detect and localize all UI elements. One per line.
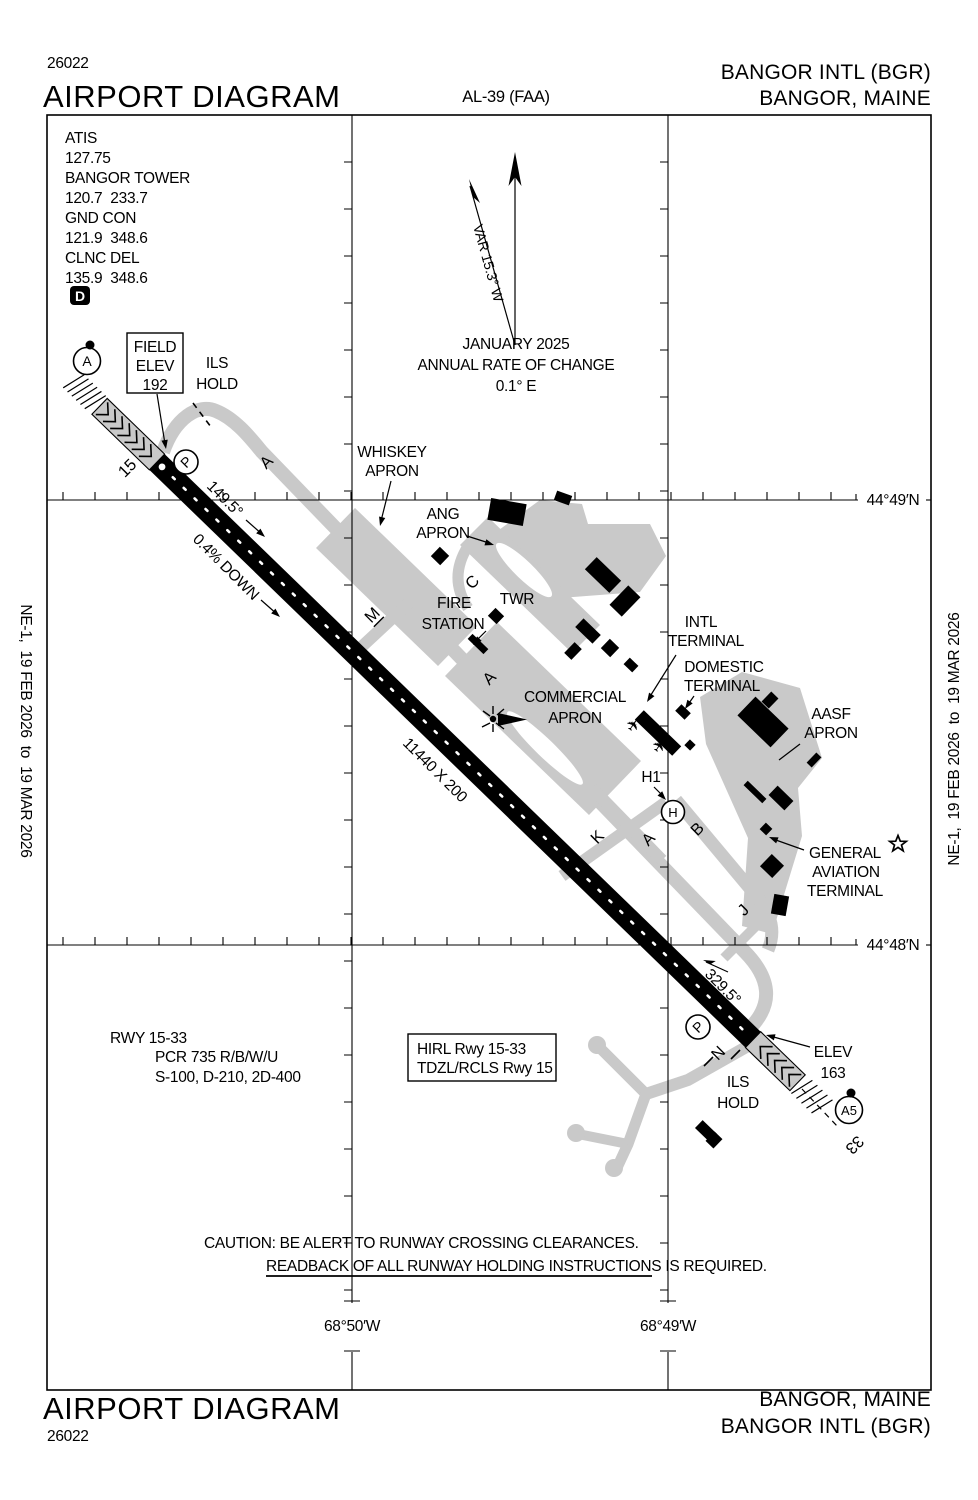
comm-line: ATIS	[65, 130, 97, 147]
beacon-center	[490, 716, 496, 722]
variation-date: JANUARY 2025	[463, 336, 570, 353]
ils-hold-label-bottom: ILS	[727, 1074, 749, 1091]
airport-diagram-chart: 26022 AIRPORT DIAGRAM AL-39 (FAA) BANGOR…	[0, 0, 978, 1500]
helipad-h1-label: H1	[641, 769, 660, 786]
annual-rate-label: ANNUAL RATE OF CHANGE	[418, 357, 615, 374]
airport-city-top: BANGOR, MAINE	[759, 87, 931, 110]
commercial-apron-label: COMMERCIAL	[524, 689, 627, 706]
gate-a-label: A	[82, 353, 92, 369]
ang-apron-label: APRON	[416, 525, 470, 542]
al-number: AL-39 (FAA)	[462, 88, 549, 106]
ils-hold-label-top: ILS	[206, 355, 228, 372]
comm-line: 127.75	[65, 150, 111, 167]
airport-diagram-page: 26022 AIRPORT DIAGRAM AL-39 (FAA) BANGOR…	[0, 0, 978, 1500]
deice-branch-3	[578, 1134, 628, 1144]
intl-terminal-label: INTL	[685, 614, 718, 631]
whiskey-apron-label: APRON	[365, 463, 419, 480]
lat-label-4448: 44°48′N	[867, 937, 920, 954]
comm-line: BANGOR TOWER	[65, 170, 190, 187]
ga-terminal-label: AVIATION	[812, 864, 880, 881]
edition-left: NE-1, 19 FEB 2026 to 19 MAR 2026	[17, 604, 34, 857]
ang-hangar	[487, 498, 526, 526]
edition-right: NE-1, 19 FEB 2026 to 19 MAR 2026	[946, 612, 963, 865]
magnetic-variation-arrow-head	[469, 179, 480, 203]
ang-apron-label: ANG	[427, 506, 460, 523]
airport-name-bottom: BANGOR INTL (BGR)	[721, 1415, 931, 1438]
runway-33-number: 33	[842, 1132, 867, 1157]
gate-a5-dot	[847, 1089, 856, 1098]
atis-d-letter: D	[75, 288, 85, 304]
fire-station-label: STATION	[422, 616, 485, 633]
field-elev-value: 192	[143, 377, 168, 394]
airport-name-top: BANGOR INTL (BGR)	[721, 61, 931, 84]
chart-number-top: 26022	[47, 55, 89, 72]
runway-15-number: 15	[115, 456, 140, 481]
comm-line: 135.9 348.6	[65, 270, 148, 287]
aasf-apron-label: APRON	[804, 725, 858, 742]
star-icon	[890, 836, 907, 851]
lon-label-6850: 68°50′W	[324, 1318, 381, 1335]
field-elev-leader	[157, 394, 165, 444]
page-title: AIRPORT DIAGRAM	[43, 79, 340, 114]
pcr-note: PCR 735 R/B/W/U	[155, 1049, 278, 1066]
whiskey-leader	[381, 481, 391, 521]
lon-label-6849: 68°49′W	[640, 1318, 697, 1335]
fire-station-label: FIRE	[437, 595, 471, 612]
rwy-note: RWY 15-33	[110, 1030, 187, 1047]
intl-leader	[649, 655, 676, 698]
lat-label-4449: 44°49′N	[867, 492, 920, 509]
gate-a-dot	[86, 341, 95, 350]
variation-label: VAR 15.3° W	[470, 223, 507, 305]
building	[624, 658, 639, 673]
deice-pad-3	[605, 1159, 623, 1177]
elev-33-label: ELEV	[814, 1044, 853, 1061]
building	[431, 547, 449, 565]
heading-33-arrowhead	[703, 956, 716, 966]
page-title-bottom: AIRPORT DIAGRAM	[43, 1391, 340, 1426]
domestic-terminal-building	[675, 704, 691, 720]
elev-33-leader	[770, 1036, 810, 1047]
caution-readback-note: READBACK OF ALL RUNWAY HOLDING INSTRUCTI…	[266, 1258, 767, 1275]
comm-frequencies: ATIS 127.75 BANGOR TOWER 120.7 233.7 GND…	[65, 130, 190, 305]
lighting-note: TDZL/RCLS Rwy 15	[417, 1060, 553, 1077]
strength-note: S-100, D-210, 2D-400	[155, 1069, 301, 1086]
commercial-apron-label: APRON	[548, 710, 602, 727]
annual-rate-value: 0.1° E	[496, 378, 537, 395]
comm-line: CLNC DEL	[65, 250, 140, 267]
lighting-note: HIRL Rwy 15-33	[417, 1041, 526, 1058]
helipad-letter: H	[668, 805, 677, 820]
gate-a5-label: A5	[841, 1103, 857, 1118]
deice-branch-1	[600, 1048, 646, 1094]
tower-label: TWR	[500, 591, 534, 608]
field-elev-line: FIELD	[134, 339, 177, 356]
aasf-apron-label: AASF	[811, 706, 850, 723]
taxiway-a-pavement	[163, 409, 766, 1027]
ils-hold-label-top: HOLD	[196, 376, 238, 393]
chart-number-bottom: 26022	[47, 1428, 89, 1445]
ga-terminal-label: GENERAL	[809, 845, 882, 862]
deice-branch-2	[616, 1094, 646, 1170]
comm-line: 120.7 233.7	[65, 190, 148, 207]
whiskey-apron-label: WHISKEY	[357, 444, 426, 461]
domestic-terminal-label: DOMESTIC	[684, 659, 764, 676]
ils-hold-label-bottom: HOLD	[717, 1095, 759, 1112]
whiskey-arrowhead	[377, 516, 385, 526]
field-elev-line: ELEV	[136, 358, 175, 375]
header: 26022 AIRPORT DIAGRAM AL-39 (FAA) BANGOR…	[43, 55, 931, 114]
footer: AIRPORT DIAGRAM 26022 BANGOR, MAINE BANG…	[43, 1388, 931, 1445]
domestic-terminal-label: TERMINAL	[684, 678, 761, 695]
deice-pad-2	[567, 1124, 585, 1142]
caution-note: CAUTION: BE ALERT TO RUNWAY CROSSING CLE…	[204, 1235, 639, 1252]
compass-group: VAR 15.3° W JANUARY 2025 ANNUAL RATE OF …	[418, 152, 615, 395]
ga-terminal-label: TERMINAL	[807, 883, 884, 900]
tower-building	[488, 608, 504, 624]
building	[601, 639, 619, 657]
elev-33-value: 163	[821, 1065, 846, 1082]
intl-terminal-label: TERMINAL	[668, 633, 745, 650]
intl-arrowhead	[644, 693, 654, 704]
comm-line: 121.9 348.6	[65, 230, 148, 247]
deice-pad-1	[588, 1036, 606, 1054]
airport-city-bottom: BANGOR, MAINE	[759, 1388, 931, 1411]
building	[684, 739, 695, 750]
comm-line: GND CON	[65, 210, 136, 227]
